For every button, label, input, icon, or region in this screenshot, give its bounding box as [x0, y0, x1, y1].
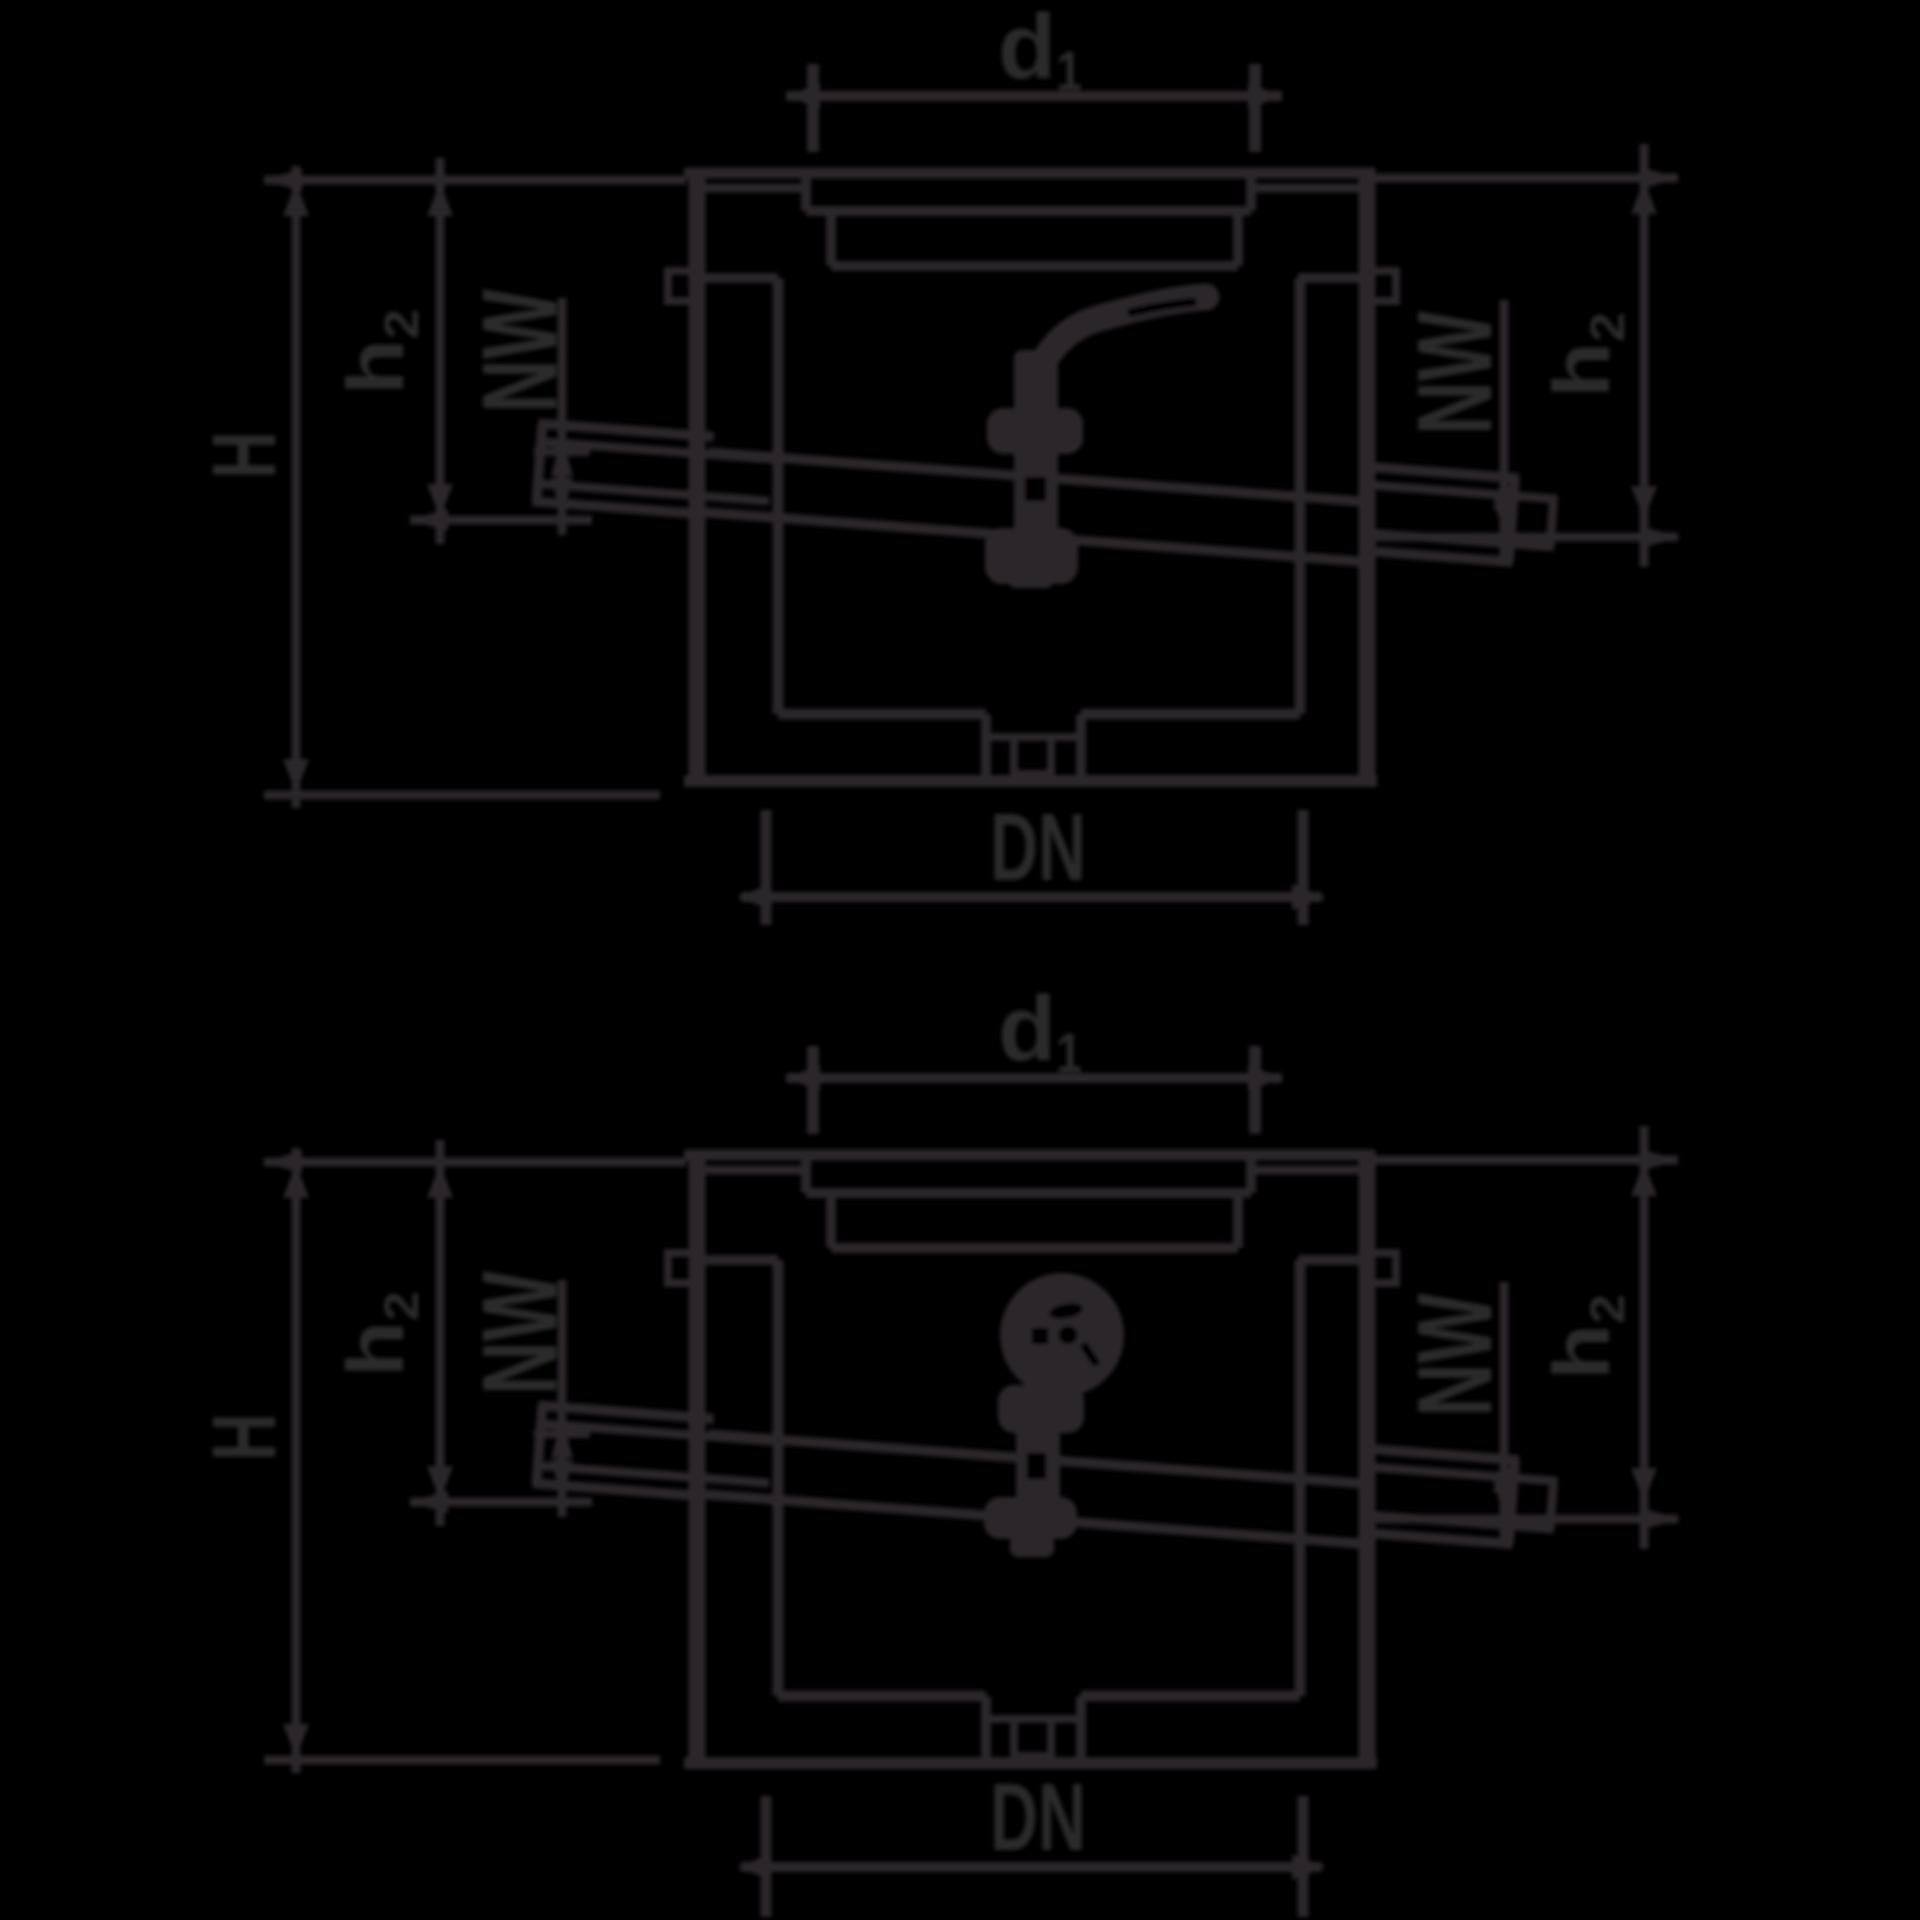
svg-text:d: d — [998, 0, 1056, 98]
svg-text:DN: DN — [990, 1764, 1086, 1871]
svg-text:NW: NW — [461, 1271, 579, 1395]
svg-text:NW: NW — [461, 289, 579, 413]
svg-text:NW: NW — [1396, 1293, 1514, 1417]
svg-text:d: d — [998, 978, 1056, 1080]
svg-text:NW: NW — [1396, 311, 1514, 435]
svg-text:H: H — [195, 1413, 295, 1461]
svg-text:H: H — [195, 431, 295, 479]
svg-text:DN: DN — [990, 794, 1086, 901]
